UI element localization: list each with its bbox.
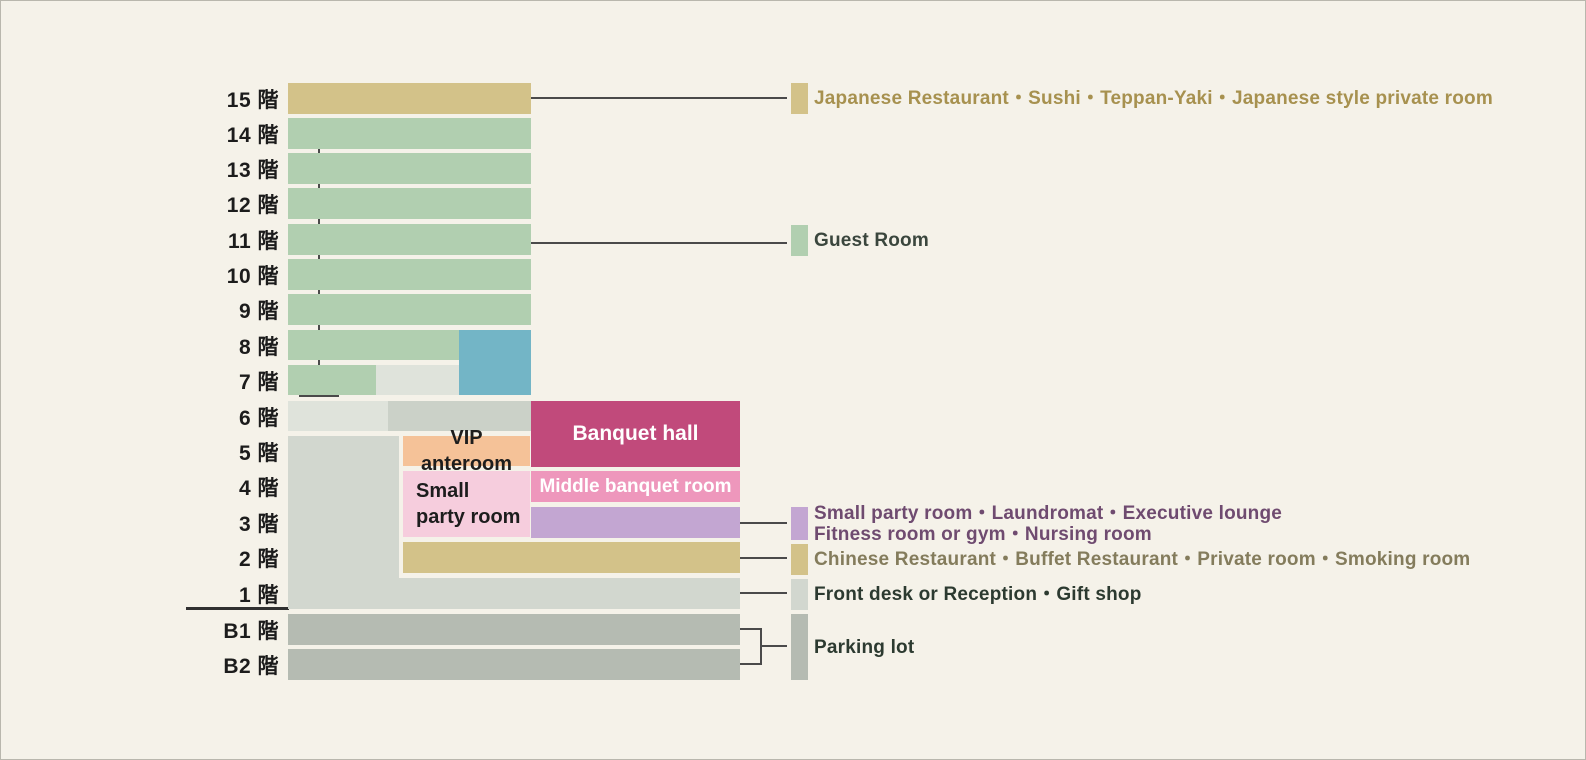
legend-parking-lot-label: Parking lot — [814, 614, 914, 680]
floor2-restaurant-bar — [403, 542, 740, 573]
floor8-guestroom-bar — [288, 330, 459, 360]
floor-label-7階: 7 階 — [182, 365, 279, 396]
floor1-front-desk-bar — [288, 578, 740, 609]
legend-chinese-restaurant-label-line: Chinese Restaurant・Buffet Restaurant・Pri… — [814, 549, 1470, 570]
legend-front-desk-swatch — [791, 579, 808, 610]
banquet-hall-block: Banquet hall — [531, 401, 740, 467]
parking-leader — [762, 645, 787, 647]
floor7-guestroom-bar — [288, 365, 376, 395]
legend-japanese-restaurant-swatch — [791, 83, 808, 114]
floor12-guestroom-bar — [288, 188, 531, 219]
legend-chinese-restaurant-label: Chinese Restaurant・Buffet Restaurant・Pri… — [814, 544, 1470, 575]
floor-label-6階: 6 階 — [182, 401, 279, 432]
leader-line-floor2 — [740, 557, 787, 559]
middle-banquet-room-block-label: Middle banquet room — [539, 474, 731, 499]
floorB2-parking-bar — [288, 649, 740, 680]
floor3-purple-block — [531, 507, 740, 538]
legend-japanese-restaurant-label-line: Japanese Restaurant・Sushi・Teppan-Yaki・Ja… — [814, 88, 1493, 109]
small-party-room-block: Small party room — [403, 471, 530, 537]
floor-label-15階: 15 階 — [182, 83, 279, 114]
legend-parking-lot-label-line: Parking lot — [814, 637, 914, 658]
legend-chinese-restaurant-swatch — [791, 544, 808, 575]
floor9-guestroom-bar — [288, 294, 531, 325]
banquet-hall-block-label: Banquet hall — [572, 420, 698, 448]
legend-parking-lot-swatch — [791, 614, 808, 680]
vip-anteroom-block: VIP anteroom — [403, 436, 530, 466]
floor-label-1階: 1 階 — [182, 578, 279, 609]
legend-small-party-room-swatch — [791, 507, 808, 540]
floor15-restaurant-bar — [288, 83, 531, 114]
floor-label-B2階: B2 階 — [182, 649, 279, 680]
floor10-guestroom-bar — [288, 259, 531, 290]
leader-line-floor15 — [531, 97, 787, 99]
small-party-room-block-label: Small party room — [416, 478, 520, 531]
floor-label-10階: 10 階 — [182, 259, 279, 290]
legend-japanese-restaurant-label: Japanese Restaurant・Sushi・Teppan-Yaki・Ja… — [814, 83, 1493, 114]
legend-small-party-room-label: Small party room・Laundromat・Executive lo… — [814, 502, 1282, 546]
leader-line-floor1 — [740, 592, 787, 594]
floor7-gray-block — [376, 365, 459, 395]
hotel-floor-guide-diagram: Banquet hallVIP anteroomSmall party room… — [0, 0, 1586, 760]
legend-small-party-room-label-line: Fitness room or gym・Nursing room — [814, 524, 1282, 545]
floor-label-8階: 8 階 — [182, 330, 279, 361]
middle-banquet-room-block: Middle banquet room — [531, 471, 740, 502]
leader-line-floor3 — [740, 522, 787, 524]
floor-label-4階: 4 階 — [182, 471, 279, 502]
floor-label-2階: 2 階 — [182, 542, 279, 573]
parking-b1-connector — [740, 628, 762, 630]
legend-guest-room-swatch — [791, 225, 808, 256]
floorB1-parking-bar — [288, 614, 740, 645]
floor-label-9階: 9 階 — [182, 294, 279, 325]
guestroom-bracket-bottom-cap — [299, 395, 339, 397]
legend-guest-room-label-line: Guest Room — [814, 230, 929, 251]
floor8-7-blue-block — [459, 330, 531, 395]
parking-b2-connector — [740, 663, 762, 665]
floor-label-B1階: B1 階 — [182, 614, 279, 645]
floor-label-5階: 5 階 — [182, 436, 279, 467]
floor-label-3階: 3 階 — [182, 507, 279, 538]
floor-label-13階: 13 階 — [182, 153, 279, 184]
legend-small-party-room-label-line: Small party room・Laundromat・Executive lo… — [814, 503, 1282, 524]
legend-guest-room-label: Guest Room — [814, 225, 929, 256]
floor13-guestroom-bar — [288, 153, 531, 184]
floor14-guestroom-bar — [288, 118, 531, 149]
floor-label-14階: 14 階 — [182, 118, 279, 149]
floor11-guestroom-bar — [288, 224, 531, 255]
legend-front-desk-label: Front desk or Reception・Gift shop — [814, 579, 1142, 610]
floor-label-11階: 11 階 — [182, 224, 279, 255]
vip-anteroom-block-label: VIP anteroom — [403, 425, 530, 478]
floor-label-12階: 12 階 — [182, 188, 279, 219]
floor6-gray-left-block — [288, 401, 388, 431]
legend-front-desk-label-line: Front desk or Reception・Gift shop — [814, 584, 1142, 605]
